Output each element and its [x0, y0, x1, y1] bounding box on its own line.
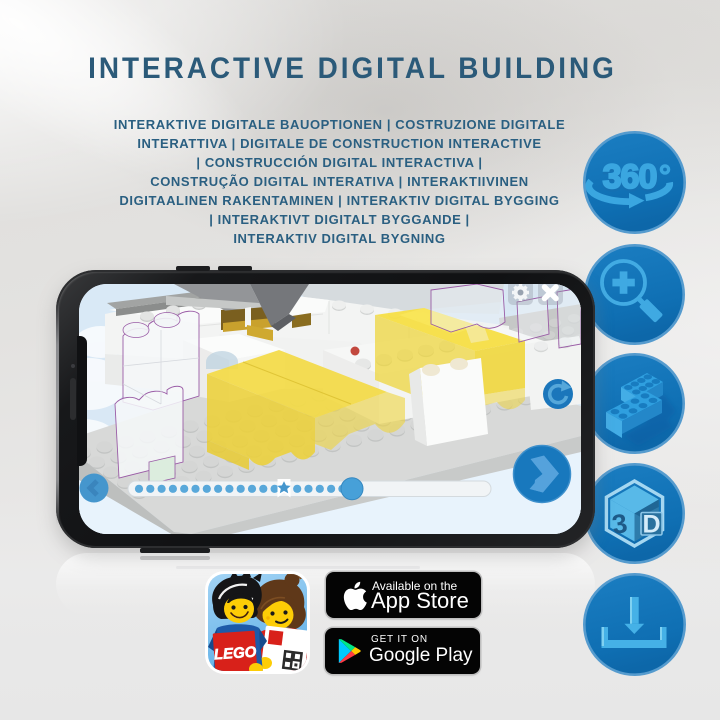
- svg-text:LEGO: LEGO: [213, 644, 257, 664]
- svg-text:360: 360: [603, 158, 657, 196]
- svg-text:D: D: [642, 511, 660, 539]
